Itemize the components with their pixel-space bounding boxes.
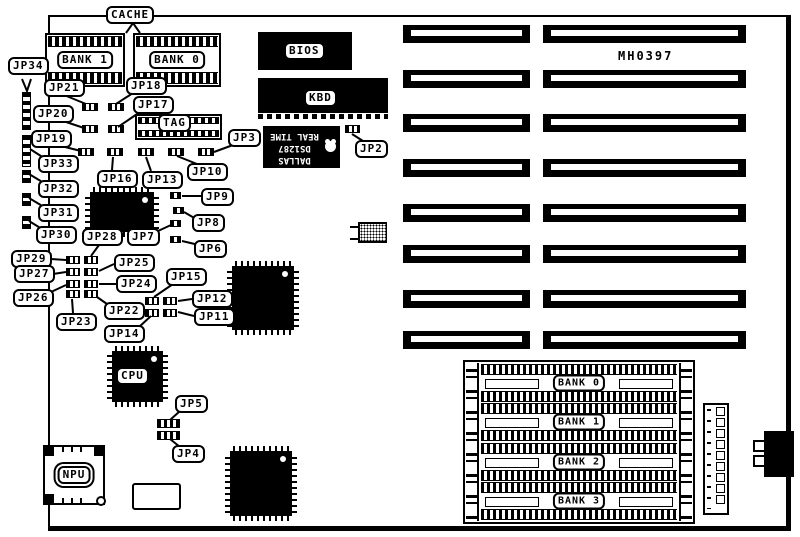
isa-slot bbox=[403, 159, 530, 177]
jumper-jp5 bbox=[157, 419, 180, 428]
simm-bank-1: BANK 1 bbox=[481, 403, 677, 441]
jumper-label-jp15: JP15 bbox=[166, 268, 207, 286]
jumper-label-jp14: JP14 bbox=[104, 325, 145, 343]
jumper-jp20 bbox=[82, 125, 98, 133]
pin-row bbox=[481, 430, 677, 441]
jumper-jp15 bbox=[145, 297, 159, 305]
rtc-brand: DALLAS bbox=[265, 154, 324, 166]
simm-socket-area: BANK 0 BANK 1 BANK 2 BANK 3 bbox=[463, 360, 695, 524]
header-pin bbox=[716, 495, 725, 504]
jumper-strip-jp34 bbox=[22, 92, 31, 130]
jumper-label-jp26: JP26 bbox=[13, 289, 54, 307]
jumper-label-jp28: JP28 bbox=[82, 228, 123, 246]
jumper-label-jp31: JP31 bbox=[38, 204, 79, 222]
jumper-jp9 bbox=[170, 192, 181, 199]
jumper-jp10 bbox=[168, 148, 184, 156]
jumper-label-jp18: JP18 bbox=[126, 77, 167, 95]
jumper-jp25 bbox=[84, 268, 98, 276]
jumper-label-jp32: JP32 bbox=[38, 180, 79, 198]
jumper-jp3 bbox=[198, 148, 214, 156]
jumper-jp17 bbox=[108, 125, 124, 133]
pin-row bbox=[136, 36, 218, 47]
simm-bank-2: BANK 2 bbox=[481, 443, 677, 481]
isa-slot bbox=[543, 290, 746, 308]
pin-row bbox=[48, 36, 122, 47]
bank1-label: BANK 1 bbox=[57, 51, 113, 69]
socket-corner bbox=[45, 494, 54, 503]
keyboard-connector bbox=[764, 431, 794, 477]
keyboard-connector-plug bbox=[753, 455, 766, 467]
npu-socket: NPU bbox=[43, 445, 105, 505]
jumper-label-jp9: JP9 bbox=[201, 188, 234, 206]
jumper-jp13 bbox=[138, 148, 154, 156]
isa-slot bbox=[543, 331, 746, 349]
bank0-label: BANK 0 bbox=[149, 51, 205, 69]
jumper-jp2 bbox=[345, 125, 360, 133]
isa-slot bbox=[543, 159, 746, 177]
cache-label: CACHE bbox=[106, 6, 154, 24]
jumper-jp29 bbox=[66, 256, 80, 264]
jumper-label-jp23: JP23 bbox=[56, 313, 97, 331]
jumper-label-jp17: JP17 bbox=[133, 96, 174, 114]
jumper-label-jp3: JP3 bbox=[228, 129, 261, 147]
jumper-label-jp27: JP27 bbox=[14, 265, 55, 283]
jumper-label-jp16: JP16 bbox=[97, 170, 138, 188]
simm-bank3-label: BANK 3 bbox=[553, 492, 605, 509]
jumper-jp12 bbox=[163, 297, 177, 305]
jumper-label-jp4: JP4 bbox=[172, 445, 205, 463]
asic-chip-1 bbox=[90, 192, 154, 232]
dallas-logo-icon bbox=[325, 141, 336, 152]
jumper-label-jp20: JP20 bbox=[33, 105, 74, 123]
jumper-label-jp10: JP10 bbox=[187, 163, 228, 181]
simm-clip-column bbox=[466, 363, 479, 521]
rtc-type: REAL TIME bbox=[265, 130, 324, 142]
pin-row bbox=[481, 403, 677, 414]
simm-bank-0: BANK 0 bbox=[481, 364, 677, 402]
isa-slot bbox=[403, 25, 530, 43]
jumper-label-jp22: JP22 bbox=[104, 302, 145, 320]
jumper-strip-jp33 bbox=[22, 135, 31, 167]
jumper-jp4 bbox=[157, 431, 180, 440]
socket-corner bbox=[94, 447, 103, 456]
pin-header-connector bbox=[703, 403, 729, 515]
jumper-label-jp19: JP19 bbox=[31, 130, 72, 148]
jumper-jp8 bbox=[173, 207, 184, 214]
jumper-jp23 bbox=[66, 290, 80, 298]
jumper-jp14 bbox=[145, 309, 159, 317]
jumper-label-jp6: JP6 bbox=[194, 240, 227, 258]
jumper-label-jp2: JP2 bbox=[355, 140, 388, 158]
isa-slot bbox=[403, 70, 530, 88]
header-pin bbox=[716, 429, 725, 438]
jumper-label-jp5: JP5 bbox=[175, 395, 208, 413]
pin1-dot bbox=[142, 197, 148, 203]
isa-slot bbox=[403, 290, 530, 308]
crystal-component bbox=[358, 222, 387, 243]
npu-label: NPU bbox=[58, 466, 91, 484]
simm-clip-column bbox=[679, 363, 692, 521]
jumper-jp11 bbox=[163, 309, 177, 317]
cpu-label: CPU bbox=[116, 367, 149, 385]
isa-slot bbox=[403, 204, 530, 222]
isa-slot bbox=[403, 331, 530, 349]
board-code: MH0397 bbox=[618, 49, 673, 63]
simm-bank-3: BANK 3 bbox=[481, 482, 677, 520]
jumper-jp28 bbox=[84, 256, 98, 264]
cpu-chip: CPU bbox=[112, 351, 163, 402]
socket-notch bbox=[96, 496, 106, 506]
pin-row bbox=[481, 364, 677, 375]
jumper-jp16 bbox=[107, 148, 123, 156]
asic-chip-2 bbox=[232, 266, 294, 330]
simm-bank2-label: BANK 2 bbox=[553, 453, 605, 470]
rtc-text: DALLAS DS1287 REAL TIME bbox=[265, 128, 324, 166]
jumper-jp7 bbox=[170, 220, 181, 227]
motherboard-diagram: BANK 1 BANK 0 TAG BIOS KBD DALLAS DS1287… bbox=[0, 0, 800, 537]
pin-row bbox=[481, 470, 677, 481]
jumper-label-jp25: JP25 bbox=[114, 254, 155, 272]
isa-slot bbox=[543, 25, 746, 43]
oscillator bbox=[132, 483, 181, 510]
pin-row bbox=[481, 482, 677, 493]
jumper-jp26 bbox=[66, 280, 80, 288]
jumper-jp30 bbox=[22, 216, 31, 229]
jumper-label-jp13: JP13 bbox=[142, 171, 183, 189]
jumper-jp31 bbox=[22, 193, 31, 206]
keyboard-connector-plug bbox=[753, 440, 766, 452]
jumper-label-jp34: JP34 bbox=[8, 57, 49, 75]
pin-row bbox=[481, 509, 677, 520]
pin-row bbox=[481, 443, 677, 454]
pin1-dot bbox=[151, 356, 157, 362]
jumper-label-jp21: JP21 bbox=[44, 79, 85, 97]
jumper-jp27 bbox=[66, 268, 80, 276]
bios-label: BIOS bbox=[284, 42, 325, 60]
jumper-jp21 bbox=[82, 103, 98, 111]
jumper-jp32 bbox=[22, 170, 31, 183]
simm-bank0-label: BANK 0 bbox=[553, 375, 605, 392]
rtc-part: DS1287 bbox=[265, 142, 324, 154]
isa-slot bbox=[543, 204, 746, 222]
jumper-label-jp11: JP11 bbox=[194, 308, 235, 326]
tag-label: TAG bbox=[158, 114, 191, 132]
pin1-dot bbox=[280, 456, 286, 462]
jumper-jp19 bbox=[78, 148, 94, 156]
kbd-label: KBD bbox=[304, 89, 337, 107]
pin1-dot bbox=[282, 271, 288, 277]
isa-slot bbox=[403, 114, 530, 132]
header-pin bbox=[716, 407, 725, 416]
header-pin bbox=[716, 484, 725, 493]
isa-slot bbox=[403, 245, 530, 263]
kbd-pin-row bbox=[258, 114, 388, 119]
header-pin bbox=[716, 418, 725, 427]
jumper-label-jp33: JP33 bbox=[38, 155, 79, 173]
socket-corner bbox=[45, 447, 54, 456]
jumper-label-jp8: JP8 bbox=[192, 214, 225, 232]
asic-chip-3 bbox=[230, 451, 292, 516]
jumper-jp24 bbox=[84, 280, 98, 288]
isa-slot bbox=[543, 70, 746, 88]
jumper-label-jp30: JP30 bbox=[36, 226, 77, 244]
header-pin bbox=[716, 451, 725, 460]
jumper-jp6 bbox=[170, 236, 181, 243]
jumper-jp18 bbox=[108, 103, 124, 111]
rtc-chip: DALLAS DS1287 REAL TIME bbox=[263, 126, 340, 168]
header-pin bbox=[716, 440, 725, 449]
pin-row bbox=[481, 391, 677, 402]
jumper-jp22 bbox=[84, 290, 98, 298]
header-pin bbox=[716, 462, 725, 471]
header-pin bbox=[716, 473, 725, 482]
isa-slot bbox=[543, 245, 746, 263]
jumper-label-jp24: JP24 bbox=[116, 275, 157, 293]
isa-slot bbox=[543, 114, 746, 132]
simm-bank1-label: BANK 1 bbox=[553, 414, 605, 431]
jumper-label-jp7: JP7 bbox=[127, 228, 160, 246]
jumper-label-jp12: JP12 bbox=[192, 290, 233, 308]
